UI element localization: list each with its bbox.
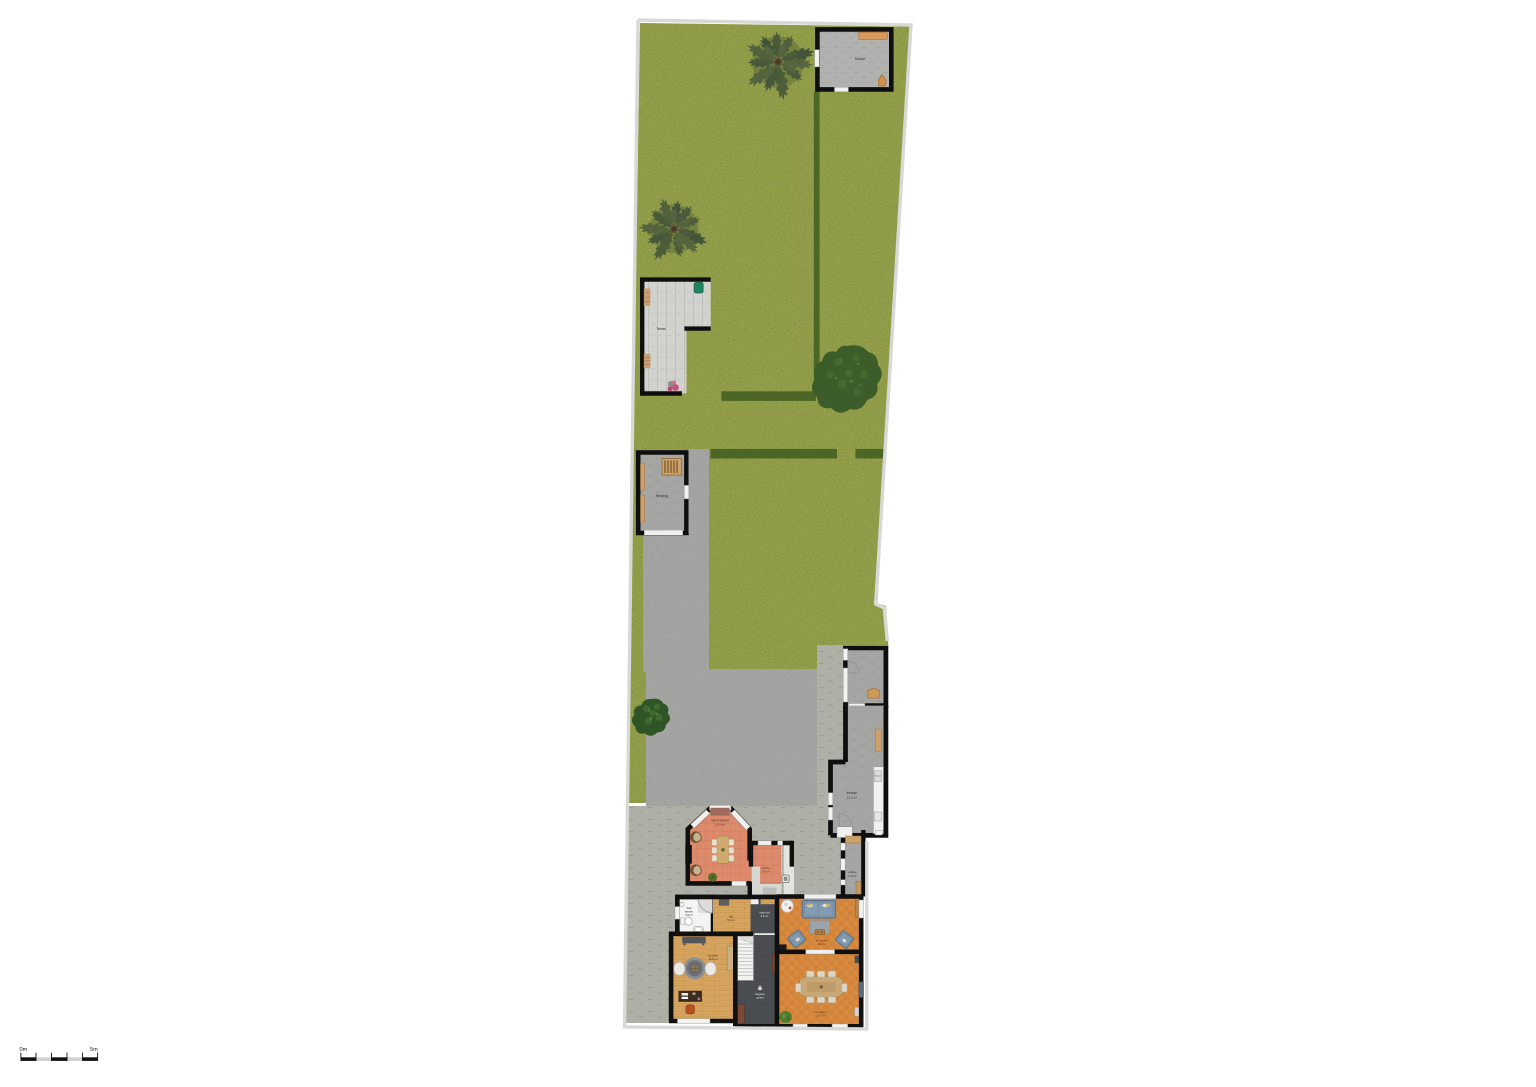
svg-text:hal: hal [729, 915, 733, 919]
svg-text:0m: 0m [20, 1047, 28, 1053]
svg-text:5.0 m²: 5.0 m² [727, 918, 735, 922]
svg-text:Berging: Berging [656, 494, 668, 498]
svg-text:2.9 m²: 2.9 m² [849, 874, 857, 878]
svg-text:grond: grond [757, 996, 764, 1000]
svg-text:Terras: Terras [656, 327, 666, 331]
svg-text:4.9 m²: 4.9 m² [685, 913, 693, 917]
svg-text:10.8 m²: 10.8 m² [708, 957, 717, 961]
svg-text:3.4 m²: 3.4 m² [761, 914, 769, 918]
svg-text:17.3 m²: 17.3 m² [816, 1014, 825, 1018]
svg-text:3.9 m²: 3.9 m² [762, 870, 770, 874]
svg-text:trap hal: trap hal [759, 911, 769, 915]
svg-text:keuken: keuken [847, 791, 858, 795]
svg-text:5m: 5m [90, 1047, 98, 1053]
svg-text:kamer: kamer [685, 910, 693, 914]
svg-text:10.6 m²: 10.6 m² [715, 823, 725, 827]
svg-text:begane: begane [755, 992, 765, 996]
svg-text:Schuur: Schuur [855, 57, 867, 61]
svg-text:eet kamer: eet kamer [814, 1010, 827, 1014]
svg-text:zit kamer: zit kamer [816, 939, 828, 943]
svg-text:13.2 m²: 13.2 m² [847, 795, 857, 799]
svg-text:21.6 m²: 21.6 m² [817, 942, 826, 946]
svg-text:studeer: studeer [708, 954, 718, 958]
